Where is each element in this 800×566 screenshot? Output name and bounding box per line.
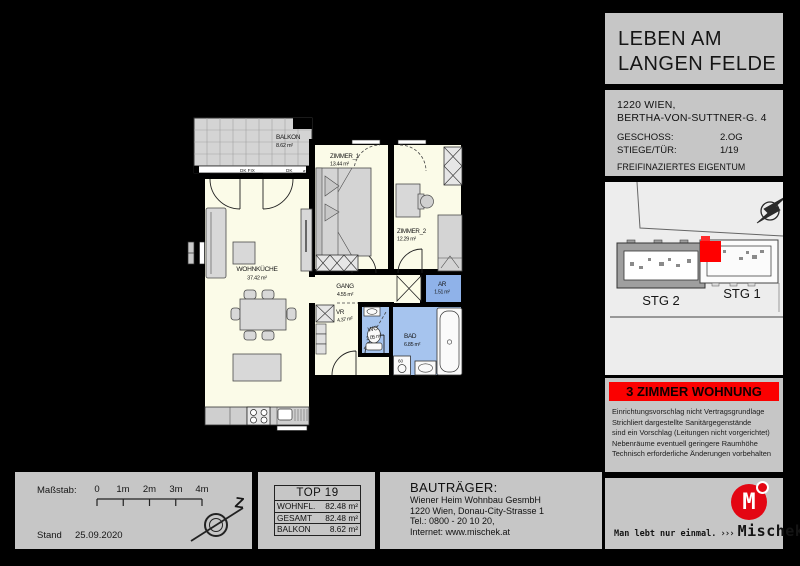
room-name: VR [336, 309, 345, 316]
scale-label: Maßstab: [37, 485, 77, 496]
chair-icon [262, 331, 274, 340]
chevrons-icon: ››› [720, 529, 733, 539]
developer-line: Internet: www.mischek.at [380, 527, 602, 538]
wardrobe-icon [444, 147, 462, 185]
room-area: 4.55 m² [337, 292, 354, 298]
disclaimer-line: Technisch erforderliche Änderungen vorbe… [612, 449, 780, 460]
project-title-box: LEBEN AM LANGEN FELDE [605, 13, 783, 84]
address-line2: BERTHA-VON-SUTTNER-G. 4 [617, 112, 783, 125]
shelf-icon [316, 324, 326, 334]
project-title-line2: LANGEN FELDE [618, 52, 783, 77]
kitchen-island-icon [233, 354, 281, 381]
stand-label: Stand [37, 530, 62, 541]
bed-icon [438, 215, 462, 271]
table-row: GESAMT 82.48 m² [275, 513, 360, 525]
stiege-value: 1/19 [720, 145, 739, 158]
desk-icon [396, 184, 420, 217]
disclaimer-line: Nebenräume eventuell geringere Raumhöhe [612, 439, 780, 450]
row-label: BALKON [277, 524, 311, 535]
tick-label: 3m [169, 484, 182, 495]
room-name: ZIMMER_2 [397, 228, 427, 235]
tick-label: 0 [94, 484, 99, 495]
room-area: 13.44 m² [330, 162, 349, 168]
shelf-icon [316, 334, 326, 344]
north-compass-icon [757, 196, 783, 223]
building-stg1 [700, 236, 778, 286]
developer-heading: BAUTRÄGER: [380, 472, 602, 495]
row-label: GESAMT [277, 513, 312, 524]
scale-bar: Maßstab: 0 1m 2m 3m 4m Z Stand 25.09.202… [15, 472, 252, 549]
chair-icon [231, 308, 240, 320]
unit-number: TOP 19 [275, 486, 360, 501]
project-title-line1: LEBEN AM [618, 27, 783, 52]
bath-sink-icon [415, 361, 436, 375]
developer-line: Wiener Heim Wohnbau GesmbH [380, 495, 602, 506]
room-area: 12.29 m² [397, 237, 416, 243]
room-name: BAD [404, 333, 417, 340]
hand-basin-icon [364, 307, 380, 316]
tick-label: 2m [143, 484, 156, 495]
bedroom1-furniture [316, 168, 371, 271]
developer-box: BAUTRÄGER: Wiener Heim Wohnbau GesmbH 12… [380, 472, 602, 549]
kitchen-counter-icon [205, 407, 309, 425]
room-area: 1.51 m² [434, 290, 450, 296]
tick-label: 4m [195, 484, 208, 495]
north-arrow-icon: Z [191, 494, 245, 541]
chair-icon [244, 331, 256, 340]
wardrobe-icon [316, 305, 334, 322]
chair-icon [287, 308, 296, 320]
geschoss-label: GESCHOSS: [617, 132, 720, 145]
row-label: WOHNFL. [277, 501, 315, 512]
disclaimer-line: sind ein Vorschlag (Leitungen nicht vorg… [612, 428, 780, 439]
dk-fix-mark: DK FIX [240, 168, 255, 173]
tick-label: 1m [116, 484, 129, 495]
developer-line: 1220 Wien, Donau-City-Strasse 1 [380, 506, 602, 517]
developer-line: Tel.: 0800 - 20 10 20, [380, 516, 602, 527]
balcony-name: BALKON [276, 134, 301, 141]
unit-summary-table: TOP 19 WOHNFL. 82.48 m² GESAMT 82.48 m² … [274, 485, 361, 536]
floor-plan: BALKON 8.62 m² DK FIX DK ⌀ [183, 110, 475, 436]
chair-icon [262, 290, 274, 299]
unit-summary-box: TOP 19 WOHNFL. 82.48 m² GESAMT 82.48 m² … [258, 472, 375, 549]
table-row: WOHNFL. 82.48 m² [275, 501, 360, 513]
disclaimer-line: Einrichtungsvorschlag nicht Vertragsgrun… [612, 407, 780, 418]
unit-type-box: 3 ZIMMER WOHNUNG Einrichtungsvorschlag n… [605, 378, 783, 472]
logo-trademark-icon [756, 481, 769, 494]
financing-type: FREIFINAZIERTES EIGENTUM [605, 157, 783, 172]
sofa-icon [206, 208, 226, 278]
stiege-label: STIEGE/TÜR: [617, 145, 720, 158]
dining-table-icon [240, 299, 286, 330]
stg2-label: STG 2 [642, 293, 680, 308]
brand-name: Mischek [738, 522, 800, 540]
address-line1: 1220 WIEN, [617, 99, 783, 112]
room-name: WOHNKÜCHE [236, 265, 278, 273]
stand-date: 25.09.2020 [75, 530, 123, 541]
row-value: 82.48 m² [325, 513, 358, 524]
dk-mark: DK [286, 168, 293, 173]
stove-icon [247, 407, 270, 425]
row-value: 82.48 m² [325, 501, 358, 512]
building-stg2 [617, 240, 705, 288]
room-name: ZIMMER_1 [330, 153, 360, 160]
site-plan-box: STG 2 STG 1 [605, 182, 783, 375]
wardrobe-icon [316, 255, 358, 271]
kitchen-sink-icon [278, 409, 292, 420]
room-name: AR [438, 281, 447, 288]
site-plan: STG 2 STG 1 [605, 182, 783, 375]
unit-type-banner: 3 ZIMMER WOHNUNG [609, 382, 779, 401]
unit-location-marker [700, 241, 721, 262]
table-row: BALKON 8.62 m² [275, 524, 360, 535]
room-area: 6.85 m² [404, 342, 421, 348]
floorplan-sheet: { "header": { "title_line1": "LEBEN AM",… [0, 0, 800, 566]
north-letter: Z [234, 494, 245, 512]
shelf-icon [316, 344, 326, 354]
room-name: GANG [336, 283, 354, 290]
scale-ruler: 0 1m 2m 3m 4m [94, 484, 208, 506]
geschoss-value: 2.OG [720, 132, 743, 145]
stg1-label: STG 1 [723, 286, 761, 301]
bathtub-icon [437, 308, 462, 375]
balcony-area: 8.62 m² [276, 143, 293, 149]
scale-box: Maßstab: 0 1m 2m 3m 4m Z Stand 25.09.202… [15, 472, 252, 549]
brand-tagline: Man lebt nur einmal. [614, 529, 716, 539]
chair-icon [244, 290, 256, 299]
brand-box: M Man lebt nur einmal. ››› Mischek [605, 478, 783, 549]
side-table-icon [233, 242, 255, 264]
disclaimer-line: Strichliert dargestellte Sanitärgegenstä… [612, 418, 780, 429]
washer-label: 60 [398, 359, 404, 364]
balcony: BALKON 8.62 m² DK FIX DK ⌀ [194, 118, 312, 173]
bed-icon [316, 168, 371, 256]
row-value: 8.62 m² [330, 524, 358, 535]
room-area: 37.42 m² [247, 276, 267, 282]
logo-letter: M [742, 490, 755, 515]
address-box: 1220 WIEN, BERTHA-VON-SUTTNER-G. 4 GESCH… [605, 90, 783, 176]
